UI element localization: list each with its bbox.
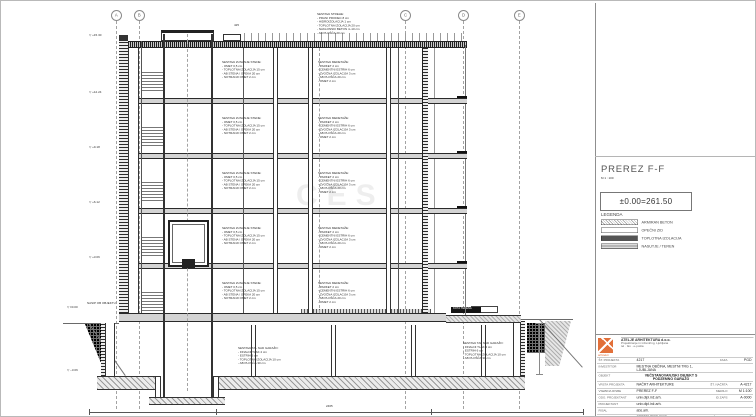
drawing-sheet: A B C D E CES 306 KOTA TERENA bbox=[0, 0, 756, 417]
level-marker: ±0.00 bbox=[67, 306, 78, 310]
floor-note: SESTAVA MEDETAŽE: - PARKET 2 cm - CEMENT… bbox=[318, 117, 355, 140]
grid-line-a bbox=[116, 21, 117, 409]
titleblock-row-label2: ŠT. NAČRTA bbox=[708, 383, 728, 386]
titleblock-row-label: ODG. PROJEKTANT bbox=[599, 396, 635, 399]
level-marker: +3.06 bbox=[89, 256, 100, 260]
foundation-slab-left bbox=[97, 376, 155, 390]
floor-slab bbox=[139, 208, 422, 214]
titleblock-row-label: OBJEKT bbox=[599, 374, 635, 377]
glazing-line bbox=[434, 48, 435, 313]
floor-note: SESTAVA MEDETAŽE: - PARKET 2 cm - CEMENT… bbox=[318, 227, 355, 250]
balcony-edge-cap bbox=[457, 206, 467, 208]
legend-swatch bbox=[601, 236, 638, 242]
interior-wall-line bbox=[398, 48, 399, 313]
balcony-railing bbox=[465, 45, 466, 315]
titleblock-row-value: PREREZ F-F bbox=[637, 389, 706, 393]
titleblock-row-label: ŠT. PROJEKTA bbox=[599, 359, 635, 362]
company-line: tel · fax · e-pošta bbox=[621, 345, 754, 348]
column bbox=[386, 48, 391, 313]
grid-letter: C bbox=[404, 13, 407, 17]
titleblock-rows: ŠT. PROJEKTA 4217 FAZA PGD INVESTITOR ME… bbox=[597, 357, 753, 417]
ground-floor-slab bbox=[119, 313, 446, 322]
left-wall bbox=[128, 41, 139, 313]
titleblock-row-value: NAČRT ARHITEKTURE bbox=[637, 383, 706, 387]
balcony-edge-cap bbox=[457, 96, 467, 98]
panel-rule-titleblock bbox=[595, 334, 755, 335]
right-wall bbox=[422, 48, 428, 313]
terrain-label: KOTA TERENA bbox=[453, 307, 472, 310]
legend-items: ARMIRAN BETON OPEČNI ZID TOPLOTNA IZOLAC… bbox=[601, 220, 751, 250]
legend-label: TOPLOTNA IZOLACIJA bbox=[642, 236, 682, 241]
parapet bbox=[119, 35, 128, 41]
dim-tick bbox=[89, 409, 90, 415]
legend-item: TOPLOTNA IZOLACIJA bbox=[601, 236, 751, 242]
level-marker: −3.06 bbox=[67, 369, 78, 373]
titleblock-row-label: INVESTITOR bbox=[599, 365, 635, 368]
shaft-wall-left bbox=[163, 34, 165, 397]
wall-note: SESTAVA ZUNANJE STENE: - OMET 0,5 cm - T… bbox=[222, 227, 265, 246]
level-marker: +9.18 bbox=[89, 146, 100, 150]
panel-separator bbox=[595, 3, 596, 416]
stair-flight bbox=[142, 127, 163, 147]
grid-letter: D bbox=[462, 13, 465, 17]
titleblock-row-label: VRSTA PROJEKTA bbox=[599, 383, 635, 386]
balcony-edge-cap bbox=[457, 261, 467, 263]
basement-wall-right-insulation bbox=[521, 321, 525, 376]
pit-floor bbox=[149, 397, 225, 405]
height-dimension-line bbox=[539, 323, 540, 375]
titleblock-row-value2: PGD bbox=[730, 358, 752, 362]
left-terrain-label: NASIP OB OBJEKTU bbox=[87, 302, 116, 306]
bottom-dimension-line bbox=[89, 412, 584, 413]
titleblock-row: INVESTITOR MESTNA OBČINA, MESTNI TRG 1, … bbox=[597, 364, 753, 373]
balcony-edge-cap bbox=[457, 151, 467, 153]
dim-tick bbox=[536, 374, 543, 375]
legend-label: NASUTJE / TEREN bbox=[642, 244, 675, 249]
roof-slab bbox=[128, 41, 467, 48]
grid-bubble: C bbox=[400, 10, 411, 21]
legend-item: NASUTJE / TEREN bbox=[601, 244, 751, 250]
stair-flight bbox=[142, 182, 163, 202]
datum-level-box: ±0.00=261.50 bbox=[600, 192, 692, 211]
wall-note: SESTAVA ZUNANJE STENE: - OMET 0,5 cm - T… bbox=[222, 282, 265, 301]
column bbox=[308, 48, 313, 313]
dim-tick bbox=[216, 409, 217, 415]
legend-label: ARMIRAN BETON bbox=[642, 220, 673, 225]
floor-slab bbox=[139, 98, 422, 104]
legend-heading: LEGENDA bbox=[601, 212, 751, 217]
titleblock-row-value: univ.dipl.inž.arh. bbox=[637, 396, 706, 400]
stair-flight bbox=[142, 237, 163, 257]
panel-rule-top bbox=[595, 156, 755, 157]
grid-bubble: A bbox=[111, 10, 122, 21]
floor-note: SESTAVA MEDETAŽE: - PARKET 2 cm - CEMENT… bbox=[318, 282, 355, 305]
slope-wedge-right bbox=[545, 321, 571, 366]
shaft-wall-right bbox=[211, 34, 213, 397]
shaft-centerline bbox=[187, 34, 188, 391]
left-wall-insulation bbox=[119, 41, 128, 313]
terrain-label-chip: KOTA TERENA bbox=[451, 307, 481, 313]
garage-column bbox=[411, 325, 416, 376]
titleblock-row-value2: A-4217 bbox=[730, 383, 752, 387]
wall-note: SESTAVA ZUNANJE STENE: - OMET 0,5 cm - T… bbox=[222, 117, 265, 136]
grid-bubble: B bbox=[134, 10, 145, 21]
level-marker: +15.30 bbox=[89, 34, 101, 38]
drawing-scale: M 1 : 100 bbox=[601, 177, 614, 181]
titleblock-row-label2: ID ZAPS bbox=[708, 396, 728, 399]
column bbox=[273, 48, 278, 313]
elevator-machinery bbox=[182, 259, 195, 268]
floor-note: SESTAVA MEDETAŽE: - PARKET 2 cm - CEMENT… bbox=[318, 61, 355, 84]
grid-bubble: D bbox=[458, 10, 469, 21]
garage-column bbox=[331, 325, 336, 376]
legend-label: OPEČNI ZID bbox=[642, 228, 663, 233]
foundation-slab-right bbox=[219, 376, 525, 390]
dim-tick bbox=[431, 409, 432, 415]
titleblock-row-label2: MERILO bbox=[708, 390, 728, 393]
terrain-line-right bbox=[521, 319, 573, 320]
pit-wall-left bbox=[155, 376, 161, 398]
floor-note: SESTAVA MEDETAŽE: - PARKET 2 cm - CEMENT… bbox=[318, 172, 355, 195]
stair-flight bbox=[142, 292, 163, 312]
wall-note: SESTAVA ZUNANJE STENE: - OMET 0,5 cm - T… bbox=[222, 61, 265, 80]
titleblock-row-value: univ.dipl.inž.arh. bbox=[637, 402, 706, 406]
drawing-title: PREREZ F-F bbox=[601, 164, 665, 175]
garage-note: SESTAVA TAL NAD GARAŽO: - FINALNI TLAK 2… bbox=[463, 342, 506, 361]
grid-line-c bbox=[405, 21, 406, 409]
top-dimension-text: 425 bbox=[234, 24, 239, 28]
grid-bubble: E bbox=[514, 10, 525, 21]
basement-wall-right bbox=[513, 321, 521, 376]
roof-construction-note: SESTAVA STREHE: - PRANI PRODEC 8 cm - HI… bbox=[317, 13, 360, 36]
titleblock-row-value: VEČSTANOVANJSKI OBJEKT S PODZEMNO GARAŽO bbox=[637, 374, 706, 381]
logo-glyph bbox=[598, 338, 613, 353]
level-marker: +6.12 bbox=[89, 201, 100, 205]
height-dimension-text: 306 bbox=[542, 348, 545, 353]
grid-line-b bbox=[139, 21, 140, 409]
legend-swatch bbox=[601, 220, 638, 226]
dim-tick bbox=[583, 409, 584, 415]
titleblock-row-label: RISAL bbox=[599, 409, 635, 412]
titleblock-row-value: abs.arh. bbox=[637, 409, 706, 413]
dim-tick bbox=[536, 323, 543, 324]
roof-vent bbox=[223, 34, 241, 41]
floor-slab bbox=[139, 153, 422, 159]
legend-swatch bbox=[601, 228, 638, 234]
bottom-dimension-text: 2465 bbox=[326, 405, 333, 409]
legend-item: ARMIRAN BETON bbox=[601, 220, 751, 226]
pavement-strip bbox=[301, 309, 431, 313]
terrace-slab bbox=[446, 315, 521, 323]
titleblock-row-label: PROJEKTANT bbox=[599, 403, 635, 406]
titleblock-row-label2: FAZA bbox=[708, 359, 728, 362]
pit-wall-right bbox=[213, 376, 219, 398]
legend-swatch bbox=[601, 244, 638, 250]
titleblock-row-value: 4217 bbox=[637, 358, 706, 362]
titleblock-row-label: VSEBINA RISBE bbox=[599, 390, 635, 393]
balcony-slab bbox=[428, 263, 467, 269]
titleblock-row: OBJEKT VEČSTANOVANJSKI OBJEKT S PODZEMNO… bbox=[597, 373, 753, 382]
grid-letter: E bbox=[518, 13, 521, 17]
basement-wall-left bbox=[105, 323, 115, 376]
balcony-slab bbox=[428, 208, 467, 214]
legend: LEGENDA ARMIRAN BETON OPEČNI ZID TOPLOTN… bbox=[601, 212, 751, 252]
balcony-slab bbox=[428, 153, 467, 159]
titleblock-row-value: MESTNA OBČINA, MESTNI TRG 1, LJUBLJANA bbox=[637, 365, 706, 372]
wall-note: SESTAVA ZUNANJE STENE: - OMET 0,5 cm - T… bbox=[222, 172, 265, 191]
titleblock-row-value2: M 1:100 bbox=[730, 389, 752, 393]
grid-letter: B bbox=[138, 13, 141, 17]
legend-item: OPEČNI ZID bbox=[601, 228, 751, 234]
level-marker: +12.24 bbox=[89, 91, 101, 95]
stair-flight bbox=[142, 72, 163, 92]
company-logo bbox=[598, 338, 613, 353]
titleblock-row-value2: A-0000 bbox=[730, 396, 752, 400]
grid-letter: A bbox=[115, 13, 118, 17]
garage-note: SESTAVA TAL NAD GARAŽO: - FINALNI TLAK 2… bbox=[238, 347, 281, 366]
company-block: ATELJE ARHITEKTURA d.o.o. Projektiranje … bbox=[621, 337, 754, 348]
datum-level-value: ±0.00=261.50 bbox=[620, 197, 673, 206]
balcony-slab bbox=[428, 98, 467, 104]
